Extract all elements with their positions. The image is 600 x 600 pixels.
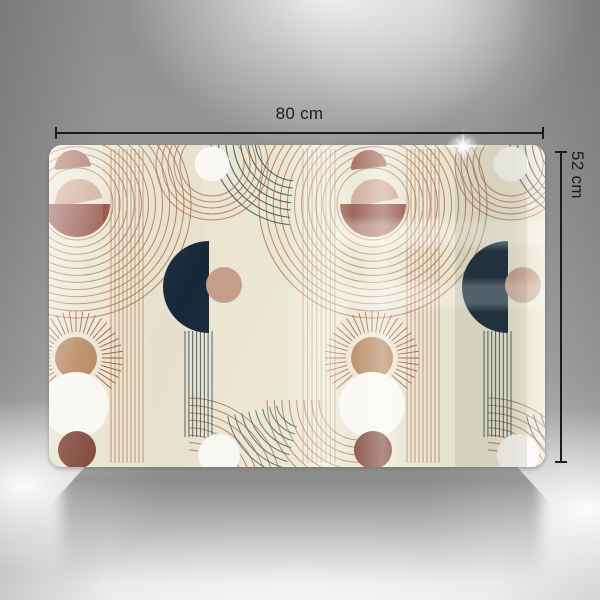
panel-floor-shadow: [62, 466, 540, 586]
width-dimension-label: 80 cm: [55, 104, 544, 124]
height-dimension-label: 52 cm: [567, 151, 587, 463]
width-dimension-line: [55, 132, 544, 134]
width-dimension: 80 cm: [55, 104, 544, 140]
boho-pattern-artwork: [49, 145, 545, 467]
height-dimension-line: [560, 151, 562, 463]
product-photo-scene: 80 cm 52 cm: [0, 0, 600, 600]
glass-splashback-panel: [49, 145, 545, 467]
height-dimension: 52 cm: [554, 151, 594, 463]
dimension-end-tick: [555, 461, 567, 463]
dimension-end-tick: [542, 127, 544, 139]
dimension-end-tick: [555, 151, 567, 153]
dimension-end-tick: [55, 127, 57, 139]
